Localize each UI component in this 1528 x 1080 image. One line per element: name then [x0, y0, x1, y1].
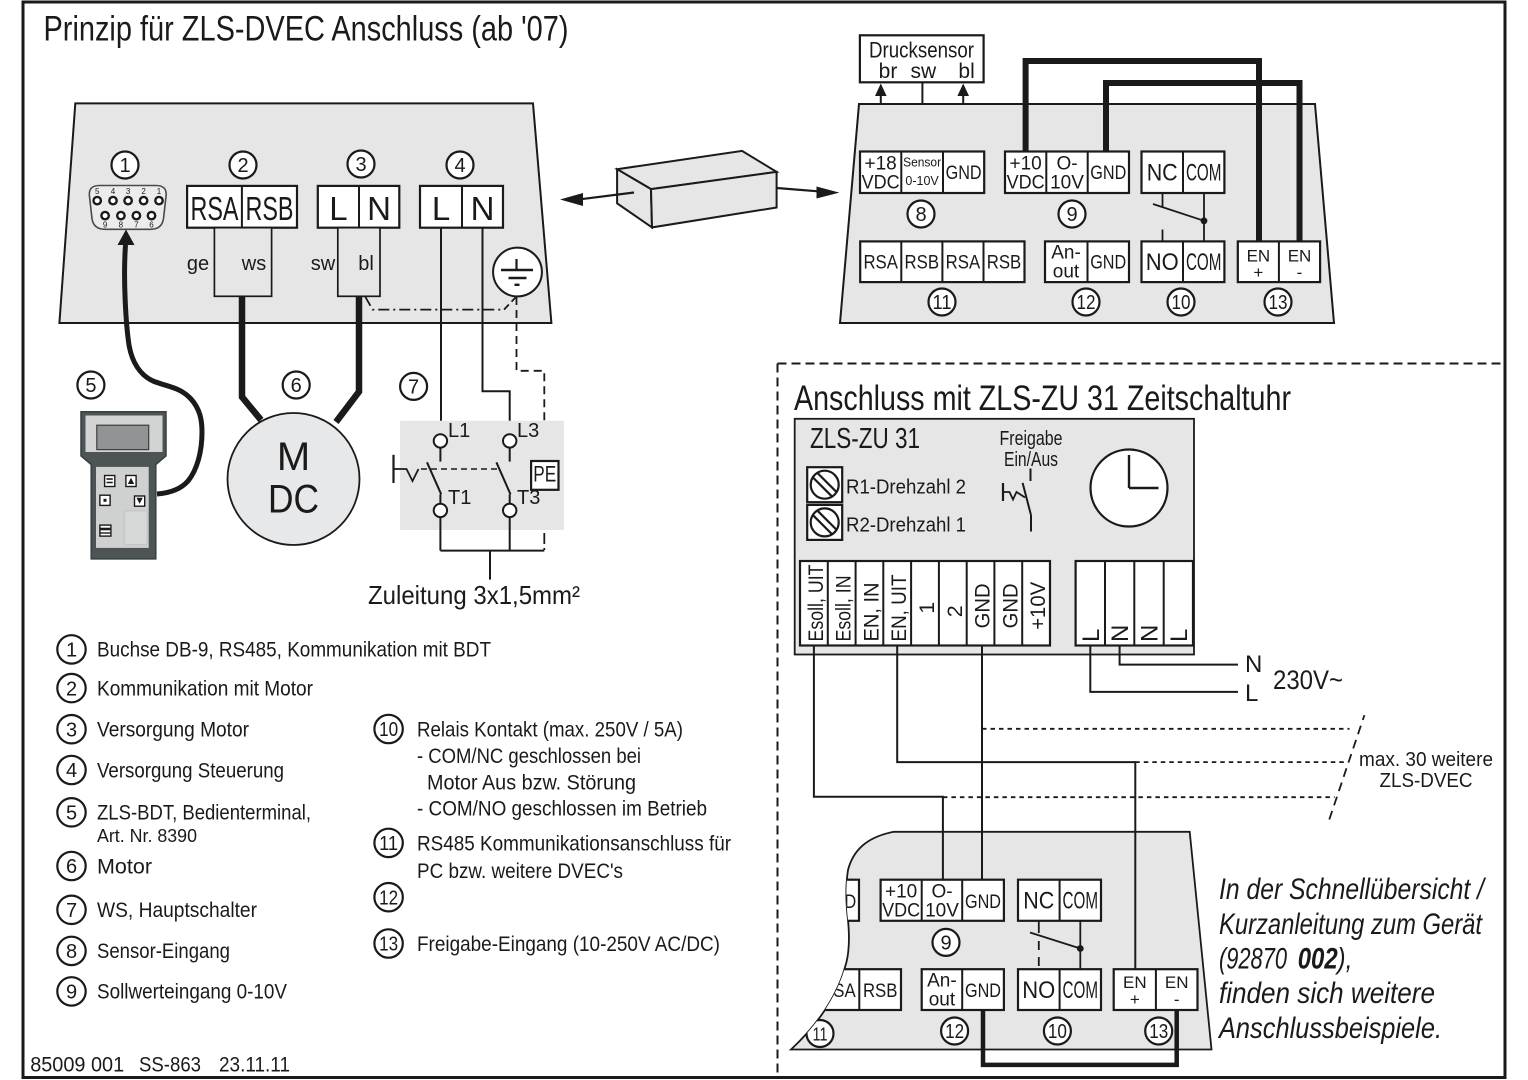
svg-text:finden sich weitere: finden sich weitere: [1219, 977, 1435, 1010]
svg-text:Freigabe: Freigabe: [1000, 428, 1063, 450]
svg-text:- COM/NC geschlossen bei: - COM/NC geschlossen bei: [417, 745, 641, 768]
svg-text:L3: L3: [517, 420, 539, 442]
svg-text:COM: COM: [1063, 977, 1099, 1004]
svg-text:230V~: 230V~: [1273, 665, 1343, 695]
svg-text:10: 10: [379, 719, 398, 741]
svg-text:Ein/Aus: Ein/Aus: [1004, 449, 1058, 471]
svg-text:N: N: [471, 190, 495, 227]
svg-text:(92870: (92870: [1219, 943, 1287, 976]
svg-text:4: 4: [111, 187, 116, 196]
svg-text:12: 12: [379, 887, 398, 909]
svg-text:1: 1: [915, 602, 939, 614]
svg-text:Relais Kontakt (max. 250V / 5A: Relais Kontakt (max. 250V / 5A): [417, 719, 683, 742]
svg-text:GND: GND: [946, 163, 982, 184]
svg-text:8: 8: [119, 221, 124, 230]
svg-text:4: 4: [66, 760, 77, 782]
svg-text:Versorgung Steuerung: Versorgung Steuerung: [97, 759, 284, 782]
svg-text:ZLS-DVEC: ZLS-DVEC: [1380, 770, 1473, 792]
svg-text:6: 6: [149, 221, 154, 230]
svg-text:002: 002: [1298, 943, 1338, 976]
svg-text:O-: O-: [1056, 154, 1077, 175]
svg-text:10: 10: [1172, 292, 1191, 314]
svg-text:- COM/NO geschlossen im Betrie: - COM/NO geschlossen im Betrieb: [417, 798, 707, 821]
svg-text:COM: COM: [1186, 249, 1222, 276]
svg-text:Sollwerteingang 0-10V: Sollwerteingang 0-10V: [97, 981, 287, 1004]
svg-text:br: br: [879, 60, 898, 83]
svg-text:Esoll, UIT: Esoll, UIT: [804, 565, 828, 642]
svg-text:7: 7: [66, 900, 77, 922]
svg-text:out: out: [929, 990, 956, 1011]
svg-text:9: 9: [940, 933, 951, 955]
svg-text:GND: GND: [998, 583, 1022, 628]
svg-text:Kommunikation mit Motor: Kommunikation mit Motor: [97, 677, 313, 700]
svg-text:7: 7: [134, 221, 139, 230]
svg-text:10: 10: [1048, 1021, 1067, 1043]
svg-text:Sensor: Sensor: [903, 156, 941, 170]
svg-text:7: 7: [408, 377, 419, 399]
svg-text:SS-863: SS-863: [139, 1054, 201, 1077]
svg-text:Art. Nr. 8390: Art. Nr. 8390: [97, 826, 197, 846]
svg-text:GND: GND: [965, 892, 1001, 913]
svg-text:bl: bl: [958, 60, 974, 83]
svg-text:RSB: RSB: [905, 253, 940, 274]
svg-text:85009 001: 85009 001: [30, 1054, 124, 1077]
svg-text:Kurzanleitung zum Gerät: Kurzanleitung zum Gerät: [1219, 908, 1483, 941]
svg-text:11: 11: [933, 292, 952, 314]
svg-text:sw: sw: [311, 253, 336, 275]
svg-text:N: N: [367, 190, 391, 227]
svg-text:PC bzw. weitere DVEC's: PC bzw. weitere DVEC's: [417, 860, 623, 883]
svg-text:An-: An-: [927, 971, 957, 992]
svg-text:N: N: [1107, 625, 1134, 642]
svg-text:L: L: [432, 190, 450, 227]
svg-text:5: 5: [95, 187, 100, 196]
svg-text:Sensor-Eingang: Sensor-Eingang: [97, 940, 230, 963]
svg-text:Anschluss mit ZLS-ZU 31 Zeitsc: Anschluss mit ZLS-ZU 31 Zeitschaltuhr: [794, 379, 1291, 418]
svg-text:Buchse DB-9, RS485, Kommunikat: Buchse DB-9, RS485, Kommunikation mit BD…: [97, 639, 491, 662]
svg-text:RS485 Kommunikationsanschluss: RS485 Kommunikationsanschluss für: [417, 832, 731, 855]
svg-text:VDC: VDC: [882, 901, 920, 922]
svg-text:bl: bl: [358, 253, 374, 275]
svg-text:11: 11: [813, 1025, 828, 1045]
svg-text:GND: GND: [1090, 163, 1126, 184]
svg-text:3: 3: [126, 187, 131, 196]
svg-text:COM: COM: [1186, 160, 1222, 187]
svg-text:6: 6: [66, 856, 77, 878]
svg-text:9: 9: [103, 221, 108, 230]
svg-text:RSB: RSB: [863, 981, 898, 1002]
svg-text:13: 13: [379, 934, 398, 956]
svg-text:L1: L1: [448, 420, 470, 442]
svg-text:11: 11: [379, 833, 398, 855]
svg-text:1: 1: [119, 155, 130, 177]
svg-text:L: L: [1078, 629, 1105, 642]
svg-text:-: -: [1174, 990, 1180, 1009]
svg-text:2: 2: [66, 678, 77, 700]
svg-text:Freigabe-Eingang (10-250V AC/D: Freigabe-Eingang (10-250V AC/DC): [417, 933, 720, 956]
svg-text:4: 4: [454, 155, 465, 177]
svg-text:An-: An-: [1051, 243, 1081, 264]
svg-text:ZLS-ZU 31: ZLS-ZU 31: [810, 423, 920, 455]
svg-text:13: 13: [1269, 292, 1288, 314]
svg-text:3: 3: [355, 154, 366, 176]
svg-text:-: -: [1297, 263, 1303, 282]
svg-text:5: 5: [66, 803, 77, 825]
svg-text:2: 2: [943, 605, 967, 617]
svg-text:RSA: RSA: [191, 190, 239, 227]
svg-text:Motor Aus bzw. Störung: Motor Aus bzw. Störung: [427, 771, 636, 794]
svg-text:R1-Drehzahl 2: R1-Drehzahl 2: [846, 477, 966, 499]
svg-text:12: 12: [1077, 292, 1096, 314]
svg-text:EN, UIT: EN, UIT: [887, 575, 911, 642]
svg-text:0-10V: 0-10V: [905, 174, 939, 188]
svg-text:out: out: [1053, 262, 1080, 283]
svg-text:NC: NC: [1023, 888, 1054, 915]
svg-text:9: 9: [1066, 204, 1077, 226]
svg-text:2: 2: [237, 155, 248, 177]
svg-text:max. 30 weitere: max. 30 weitere: [1359, 749, 1493, 771]
svg-text:L: L: [1245, 680, 1258, 707]
svg-text:Motor: Motor: [97, 855, 152, 878]
svg-text:VDC: VDC: [1007, 173, 1045, 194]
svg-text:NC: NC: [1147, 160, 1178, 187]
svg-text:+10: +10: [885, 882, 917, 903]
svg-text:WS, Hauptschalter: WS, Hauptschalter: [97, 899, 257, 922]
svg-text:Anschlussbeispiele.: Anschlussbeispiele.: [1217, 1012, 1442, 1045]
svg-text:O-: O-: [931, 882, 952, 903]
svg-text:ZLS-BDT, Bedienterminal,: ZLS-BDT, Bedienterminal,: [97, 802, 311, 825]
svg-text:8: 8: [915, 204, 926, 226]
svg-text:PE: PE: [533, 462, 556, 487]
svg-text:Zuleitung 3x1,5mm²: Zuleitung 3x1,5mm²: [368, 580, 580, 610]
svg-text:8: 8: [66, 941, 77, 963]
svg-text:10V: 10V: [1050, 173, 1084, 194]
svg-text:6: 6: [291, 375, 302, 397]
svg-text:RSA: RSA: [863, 253, 898, 274]
svg-text:3: 3: [66, 719, 77, 741]
svg-text:DC: DC: [268, 478, 319, 522]
svg-text:+18: +18: [864, 154, 896, 175]
svg-text:VDC: VDC: [862, 173, 900, 194]
svg-text:RSA: RSA: [946, 253, 981, 274]
svg-text:R2-Drehzahl 1: R2-Drehzahl 1: [846, 515, 966, 537]
svg-text:GND: GND: [1090, 253, 1126, 274]
svg-text:N: N: [1245, 651, 1262, 678]
svg-text:EN, IN: EN, IN: [859, 583, 883, 642]
svg-text:12: 12: [945, 1021, 964, 1043]
svg-text:Prinzip für ZLS-DVEC Anschluss: Prinzip für ZLS-DVEC Anschluss (ab '07): [44, 10, 569, 49]
svg-text:NO: NO: [1022, 977, 1055, 1004]
svg-text:10V: 10V: [925, 901, 959, 922]
svg-text:Versorgung Motor: Versorgung Motor: [97, 719, 249, 742]
svg-text:Drucksensor: Drucksensor: [869, 38, 974, 63]
svg-text:9: 9: [66, 982, 77, 1004]
svg-text:+: +: [1130, 990, 1140, 1009]
svg-text:T1: T1: [448, 487, 471, 509]
svg-text:RSB: RSB: [246, 190, 294, 227]
svg-text:N: N: [1137, 625, 1164, 642]
svg-text:Esoll, IN: Esoll, IN: [832, 576, 856, 642]
svg-text:In der Schnellübersicht /: In der Schnellübersicht /: [1219, 873, 1486, 906]
svg-text:M: M: [277, 435, 310, 479]
svg-text:ws: ws: [241, 253, 266, 275]
svg-text:13: 13: [1149, 1021, 1168, 1043]
svg-text:ge: ge: [187, 253, 209, 275]
svg-text:COM: COM: [1063, 888, 1099, 915]
svg-text:sw: sw: [910, 60, 937, 83]
svg-text:+10V: +10V: [1026, 581, 1050, 630]
svg-text:L: L: [1166, 629, 1193, 642]
svg-text:1: 1: [66, 640, 77, 662]
svg-text:),: ),: [1335, 943, 1352, 976]
svg-text:GND: GND: [965, 981, 1001, 1002]
svg-text:1: 1: [157, 187, 162, 196]
svg-text:+: +: [1253, 263, 1263, 282]
svg-text:NO: NO: [1146, 249, 1179, 276]
svg-text:2: 2: [141, 187, 146, 196]
svg-text:RSB: RSB: [987, 253, 1022, 274]
svg-text:L: L: [329, 190, 347, 227]
svg-text:5: 5: [85, 375, 96, 397]
svg-text:GND: GND: [971, 583, 995, 628]
svg-text:23.11.11: 23.11.11: [219, 1054, 290, 1077]
svg-text:+10: +10: [1009, 154, 1041, 175]
